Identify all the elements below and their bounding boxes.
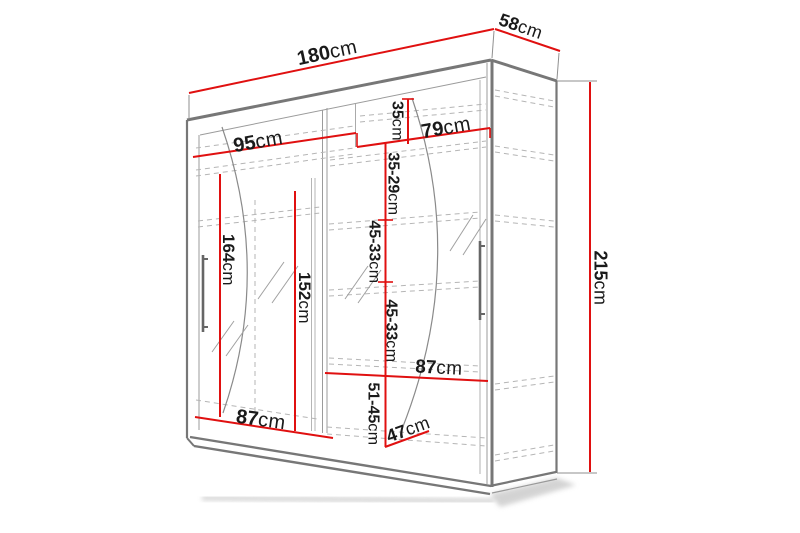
plinth-bottom-edge — [194, 446, 490, 494]
label-total-height: 215cm — [591, 250, 611, 305]
label-left-hanging-height: 164cm — [219, 234, 238, 286]
dashed-side-edge — [495, 221, 554, 227]
floor-shadow — [202, 478, 576, 507]
label-left-bottom-width: 87cm — [235, 406, 287, 435]
dimension-lines — [189, 29, 590, 472]
extension-tick — [557, 53, 559, 79]
right-door-handle — [480, 241, 485, 320]
dashed-rail-edge — [198, 213, 320, 227]
dashed-side-edge — [495, 90, 554, 101]
dashed-shelf-edge — [329, 212, 480, 224]
mirror-hatch-mark — [258, 262, 284, 299]
diagram-canvas: 180cm 58cm 215cm 95cm 79cm 35cm 35-29cm … — [0, 0, 800, 533]
mirror-hatch-mark — [212, 321, 234, 352]
dashed-side-edge — [495, 382, 554, 390]
dim-line-right-shelf-width — [325, 373, 488, 381]
bottom-front-edge — [190, 437, 491, 486]
dashed-shelf-edge — [329, 218, 480, 230]
mirror-hatching — [212, 215, 486, 356]
label-shelf-gap-1: 35-29cm — [384, 152, 401, 215]
extension-tick — [492, 31, 494, 58]
dashed-side-edge — [495, 152, 554, 161]
dashed-side-edge — [495, 451, 554, 461]
dashed-side-edge — [495, 96, 554, 107]
label-right-shelf-width: 87cm — [415, 356, 464, 379]
dashed-side-edge — [495, 445, 554, 455]
left-foot-edge — [187, 438, 194, 446]
front-shadow — [202, 498, 494, 501]
label-inner-depth: 47cm — [384, 412, 433, 446]
dashed-side-edge — [495, 376, 554, 384]
mirror-hatch-mark — [226, 325, 248, 356]
dashed-shelf-edge — [330, 147, 486, 166]
top-front-edge — [187, 60, 491, 120]
label-left-section-width: 95cm — [232, 127, 285, 157]
left-door-handle — [203, 255, 208, 332]
label-shelf-gap-4: 51-45cm — [364, 382, 381, 445]
wardrobe-dimension-diagram: 180cm 58cm 215cm 95cm 79cm 35cm 35-29cm … — [0, 0, 800, 533]
label-right-section-width: 79cm — [420, 113, 473, 143]
dashed-side-edge — [495, 146, 554, 155]
label-shelf-gap-2: 45-33cm — [365, 220, 382, 283]
label-top-right-cubby: 35cm — [388, 101, 405, 141]
label-shelf-gap-3: 45-33cm — [382, 299, 399, 362]
label-left-inner-height: 152cm — [295, 272, 314, 324]
dashed-shelf-edge — [196, 154, 354, 176]
dashed-shelf-edge — [196, 148, 354, 170]
side-top-edge — [491, 60, 557, 81]
dashed-rail-edge — [198, 207, 320, 221]
dashed-side-edge — [495, 215, 554, 221]
